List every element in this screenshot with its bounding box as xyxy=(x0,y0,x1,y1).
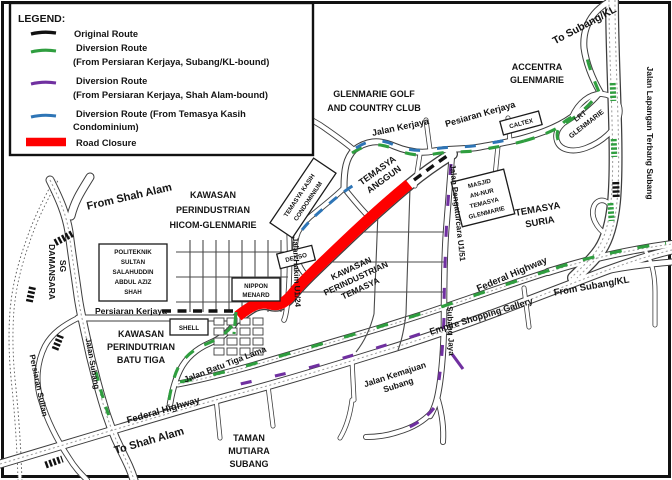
svg-text:PERINDUTRIAN: PERINDUTRIAN xyxy=(107,342,175,352)
svg-text:SULTAN: SULTAN xyxy=(121,259,146,266)
svg-text:PERINDUSTRIAN: PERINDUSTRIAN xyxy=(176,205,250,215)
svg-text:MUTIARA: MUTIARA xyxy=(228,446,270,456)
svg-text:Diversion Route: Diversion Route xyxy=(76,76,147,86)
svg-text:Diversion Route (From Temasya: Diversion Route (From Temasya Kasih xyxy=(76,109,246,119)
svg-text:Original Route: Original Route xyxy=(74,29,138,39)
svg-text:HICOM-GLENMARIE: HICOM-GLENMARIE xyxy=(170,220,257,230)
svg-text:SHELL: SHELL xyxy=(179,325,200,332)
road-diversion-map: POLITEKNIK SULTAN SALAHUDDIN ABDUL AZIZ … xyxy=(0,0,672,480)
svg-text:Condominium): Condominium) xyxy=(73,122,139,132)
svg-text:AND COUNTRY CLUB: AND COUNTRY CLUB xyxy=(327,103,421,113)
svg-text:Diversion Route: Diversion Route xyxy=(76,43,147,53)
label-batu-tiga: KAWASAN xyxy=(118,329,164,339)
politeknik-label: POLITEKNIK xyxy=(114,249,152,256)
svg-text:MENARD: MENARD xyxy=(242,292,270,299)
legend: LEGEND: Original Route Diversion Route (… xyxy=(10,3,313,155)
legend-title: LEGEND: xyxy=(18,13,65,25)
svg-text:SALAHUDDIN: SALAHUDDIN xyxy=(113,269,154,276)
politeknik-box: POLITEKNIK SULTAN SALAHUDDIN ABDUL AZIZ … xyxy=(99,244,167,301)
label-jalan-lapangan: Jalan Lapangan Terbang Subang xyxy=(645,66,655,199)
label-hicom: KAWASAN xyxy=(190,190,236,200)
legend-swatch-original xyxy=(31,32,56,34)
legend-swatch-purple xyxy=(31,82,56,84)
diversion-map-canvas: POLITEKNIK SULTAN SALAHUDDIN ABDUL AZIZ … xyxy=(0,0,672,480)
svg-text:Road Closure: Road Closure xyxy=(76,138,136,148)
label-persiaran-kerjaya-w: Persiaran Kerjaya xyxy=(95,306,167,316)
label-damansara: DAMANSARA xyxy=(47,244,57,300)
nippon-menard-box: NIPPON MENARD xyxy=(232,278,280,301)
label-accentra: ACCENTRA xyxy=(512,62,563,72)
label-sg: SG xyxy=(58,260,68,273)
shell-box: SHELL xyxy=(170,319,208,335)
svg-text:GLENMARIE: GLENMARIE xyxy=(510,75,564,85)
legend-swatch-blue xyxy=(31,115,56,117)
legend-box xyxy=(10,3,313,155)
legend-swatch-green xyxy=(31,50,56,52)
svg-text:SHAH: SHAH xyxy=(124,289,142,296)
svg-text:BATU TIGA: BATU TIGA xyxy=(117,355,166,365)
svg-text:NIPPON: NIPPON xyxy=(244,283,268,290)
svg-text:SUBANG: SUBANG xyxy=(229,459,268,469)
svg-text:ABDUL AZIZ: ABDUL AZIZ xyxy=(115,279,152,286)
svg-text:(From Persiaran Kerjaya, Shah: (From Persiaran Kerjaya, Shah Alam-bound… xyxy=(73,90,268,100)
label-taman-mutiara: TAMAN xyxy=(233,433,265,443)
label-glenmarie-golf: GLENMARIE GOLF xyxy=(333,89,415,99)
svg-text:(From Persiaran Kerjaya, Suban: (From Persiaran Kerjaya, Subang/KL-bound… xyxy=(73,57,269,67)
